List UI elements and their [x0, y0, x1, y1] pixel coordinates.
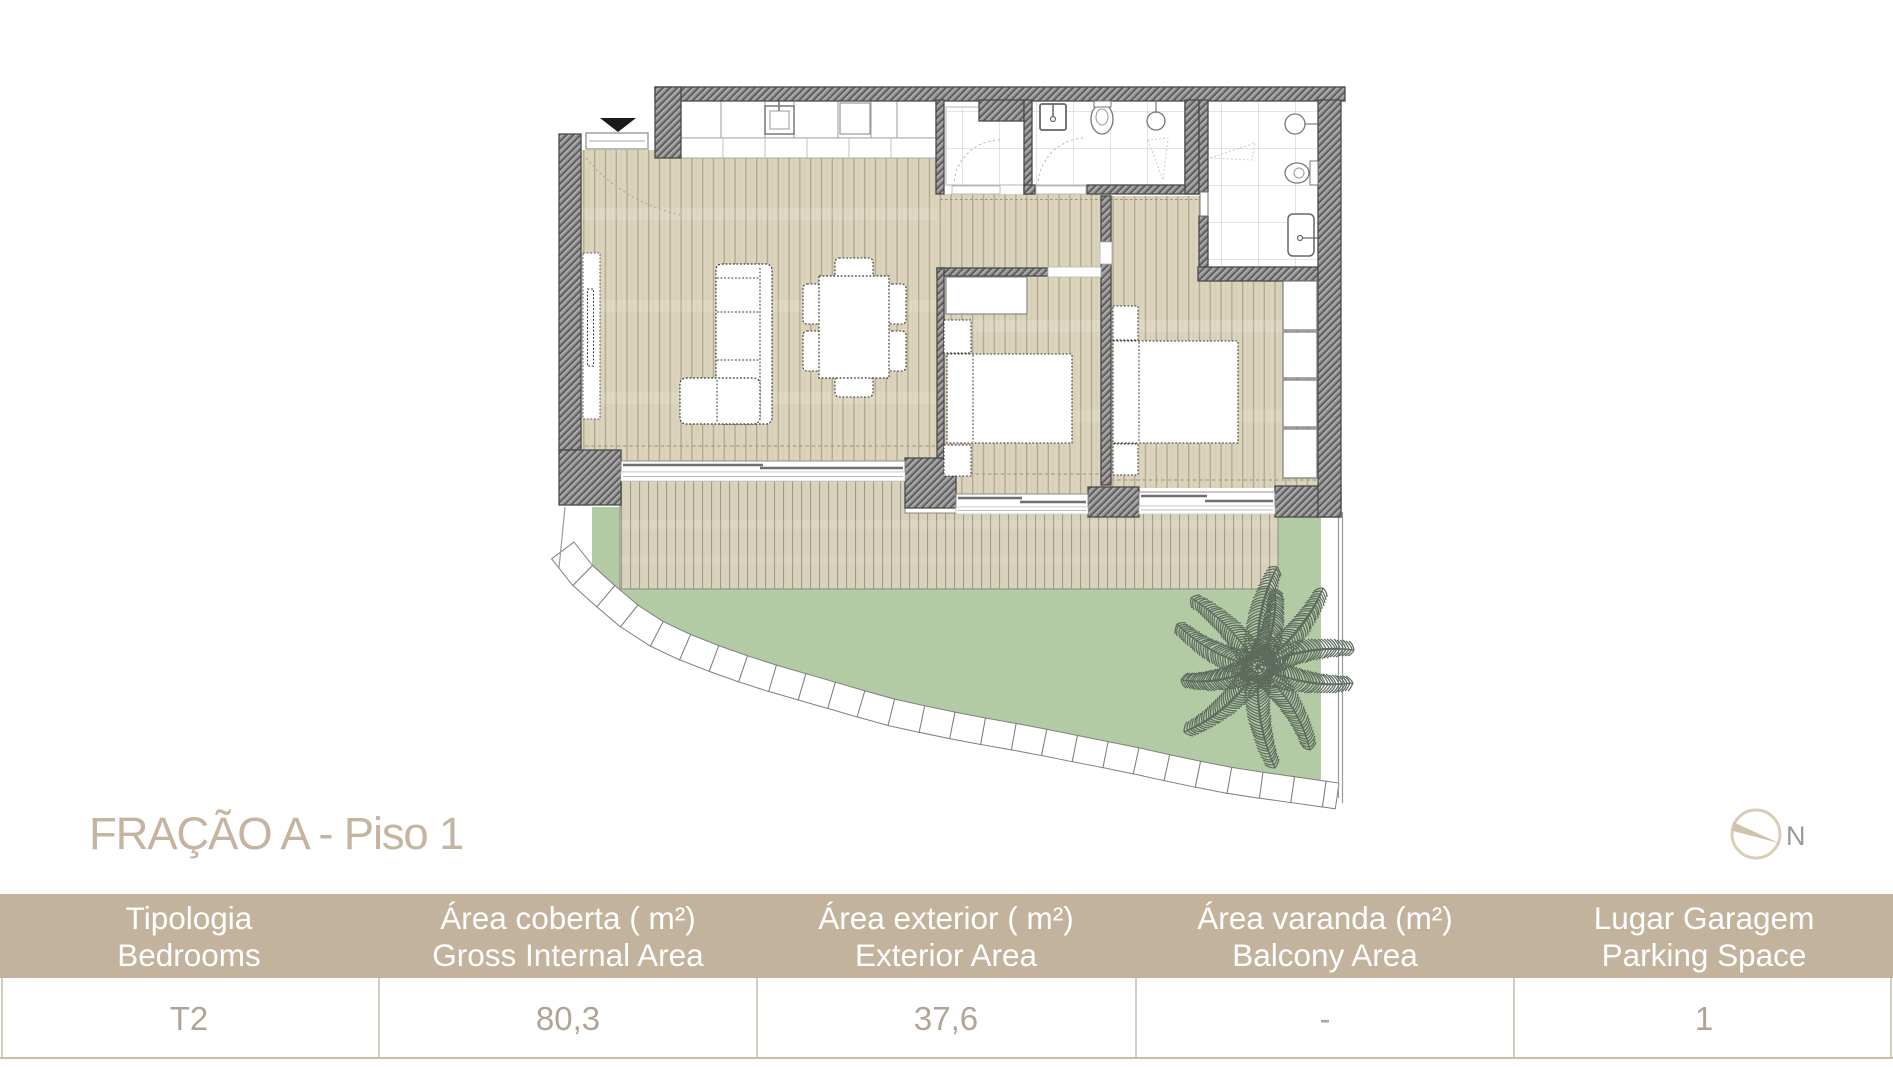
svg-text:80,3: 80,3 [536, 1000, 600, 1037]
svg-text:Lugar Garagem: Lugar Garagem [1594, 900, 1815, 936]
svg-text:37,6: 37,6 [914, 1000, 978, 1037]
svg-text:Parking Space: Parking Space [1602, 937, 1807, 973]
svg-text:Bedrooms: Bedrooms [117, 937, 261, 973]
svg-text:Área varanda (m²): Área varanda (m²) [1197, 900, 1453, 936]
svg-text:Tipologia: Tipologia [126, 900, 253, 936]
svg-text:-: - [1320, 1000, 1331, 1037]
svg-text:Área exterior ( m²): Área exterior ( m²) [818, 900, 1074, 936]
svg-text:1: 1 [1695, 1000, 1713, 1037]
svg-text:N: N [1786, 821, 1806, 851]
svg-text:Balcony Area: Balcony Area [1232, 937, 1418, 973]
svg-text:Gross Internal Area: Gross Internal Area [432, 937, 704, 973]
svg-text:T2: T2 [170, 1000, 209, 1037]
svg-text:Área coberta ( m²): Área coberta ( m²) [440, 900, 696, 936]
svg-text:FRAÇÃO A - Piso 1: FRAÇÃO A - Piso 1 [89, 808, 463, 859]
svg-text:Exterior Area: Exterior Area [855, 937, 1038, 973]
